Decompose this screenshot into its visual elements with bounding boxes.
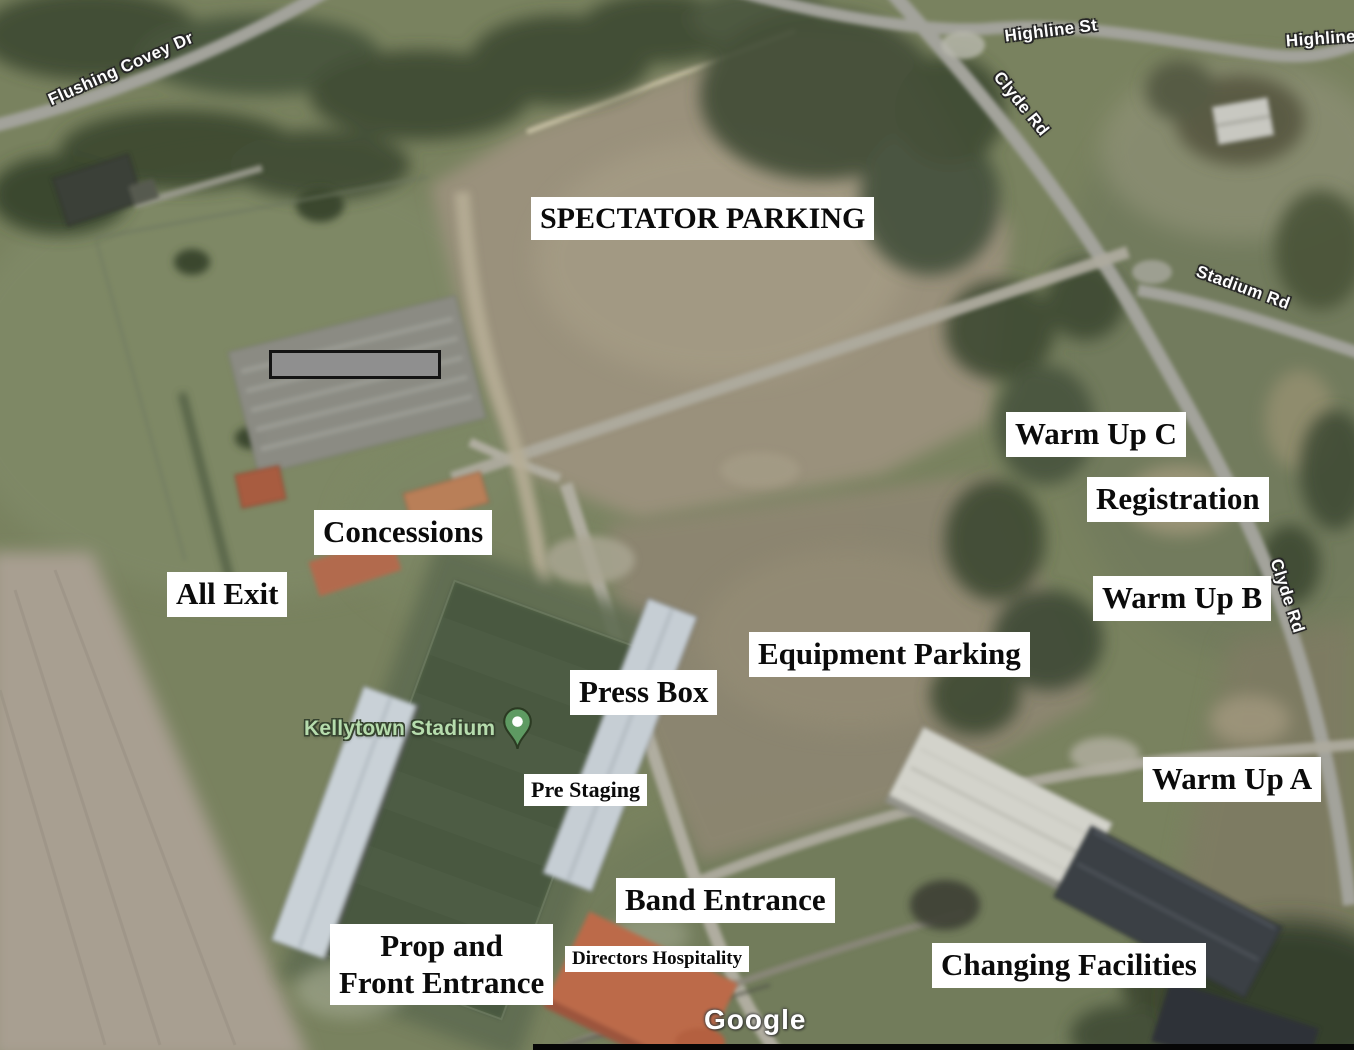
label-line-1: Prop and (339, 928, 544, 965)
google-watermark[interactable]: Google (704, 1004, 806, 1036)
event-label-pre-staging: Pre Staging (524, 774, 647, 806)
event-label-warm-up-c: Warm Up C (1006, 412, 1186, 457)
event-label-directors-hospitality: Directors Hospitality (565, 946, 749, 972)
event-label-warm-up-a: Warm Up A (1143, 757, 1321, 802)
event-label-registration: Registration (1087, 477, 1269, 522)
map-canvas[interactable]: Flushing Covey Dr Highline St Highline C… (0, 0, 1354, 1050)
event-label-changing-facilities: Changing Facilities (932, 943, 1206, 988)
event-label-concessions: Concessions (314, 510, 492, 555)
blank-annotation-rectangle (269, 350, 441, 379)
map-pin-icon[interactable] (502, 706, 533, 752)
event-label-warm-up-b: Warm Up B (1093, 576, 1271, 621)
label-line-2: Front Entrance (339, 965, 544, 1002)
event-label-all-exit: All Exit (167, 572, 287, 617)
event-label-prop-front-entrance: Prop and Front Entrance (330, 924, 553, 1005)
event-label-press-box: Press Box (570, 670, 717, 715)
bottom-black-bar (533, 1044, 1354, 1050)
place-label-kellytown-stadium[interactable]: Kellytown Stadium (304, 706, 533, 752)
event-label-equipment-parking: Equipment Parking (749, 632, 1030, 677)
event-label-band-entrance: Band Entrance (616, 878, 835, 923)
event-label-spectator-parking: SPECTATOR PARKING (531, 197, 874, 240)
place-name[interactable]: Kellytown Stadium (304, 717, 495, 741)
